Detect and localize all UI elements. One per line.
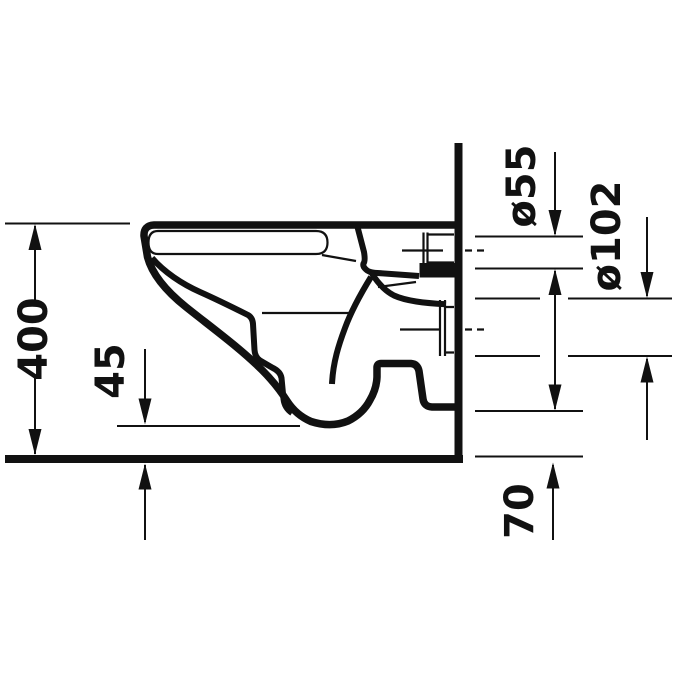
arrowhead-45-up: [139, 464, 152, 490]
trap-inner-curve: [332, 277, 371, 384]
dimension-outlet-102: [641, 217, 654, 440]
arrowhead-70-bottom: [547, 463, 560, 489]
outlet-pipe-flange-lines: [440, 300, 445, 356]
structure-lines: [5, 143, 463, 463]
dimension-label-inlet-diameter: ø55: [499, 144, 545, 227]
arrowhead-102-bottom: [641, 357, 654, 383]
arrowhead-102-top: [641, 272, 654, 298]
rim-seat-outline: [149, 231, 328, 254]
rim-to-block-line: [322, 255, 356, 261]
dimension-label-outlet-diameter: ø102: [584, 181, 630, 292]
dimension-labels: 400 45 ø55 ø102 70: [11, 144, 630, 538]
outlet-pipe-bore-lines: [446, 307, 454, 353]
technical-drawing: 400 45 ø55 ø102 70: [0, 0, 680, 680]
inlet-pipe-bore-lines: [428, 235, 454, 263]
dimension-bottom-70: [547, 463, 560, 541]
inlet-pipe-flange-lines: [424, 233, 428, 267]
dimension-inlet-55: [549, 152, 562, 411]
arrowhead-55-bottom: [549, 269, 562, 295]
arrowhead-55-top: [549, 210, 562, 236]
arrowhead-45-down: [139, 399, 152, 425]
dimension-label-clearance: 45: [88, 343, 134, 399]
dimension-label-height: 400: [11, 297, 57, 381]
arrowhead-400-bottom: [29, 429, 42, 455]
dimension-clearance-45: [139, 349, 152, 540]
toilet-side-elevation-svg: 400 45 ø55 ø102 70: [0, 0, 680, 680]
outlet-pipe: [440, 300, 454, 356]
arrowhead-400-top: [29, 224, 42, 250]
arrowhead-70-top: [549, 385, 562, 411]
inlet-pipe: [424, 233, 455, 267]
dimension-label-bottom-height: 70: [497, 483, 543, 539]
inlet-junction-fill: [420, 263, 457, 278]
